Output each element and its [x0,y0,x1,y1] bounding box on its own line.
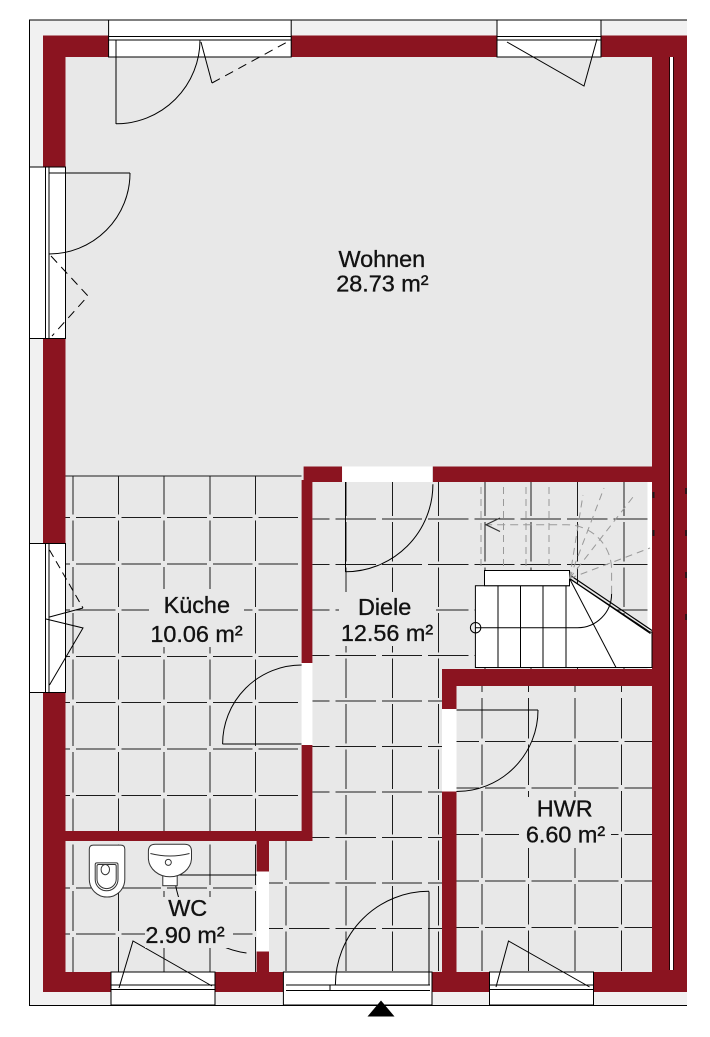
svg-text:6.60 m²: 6.60 m² [526,821,606,847]
svg-text:2.90 m²: 2.90 m² [145,922,225,948]
svg-text:Diele: Diele [358,594,411,620]
svg-text:28.73 m²: 28.73 m² [336,270,429,296]
svg-text:10.06 m²: 10.06 m² [150,621,243,647]
svg-text:WC: WC [168,895,207,921]
svg-text:Küche: Küche [164,592,230,618]
svg-text:Wohnen: Wohnen [338,246,425,272]
svg-text:12.56 m²: 12.56 m² [341,620,434,646]
svg-text:HWR: HWR [537,796,593,822]
